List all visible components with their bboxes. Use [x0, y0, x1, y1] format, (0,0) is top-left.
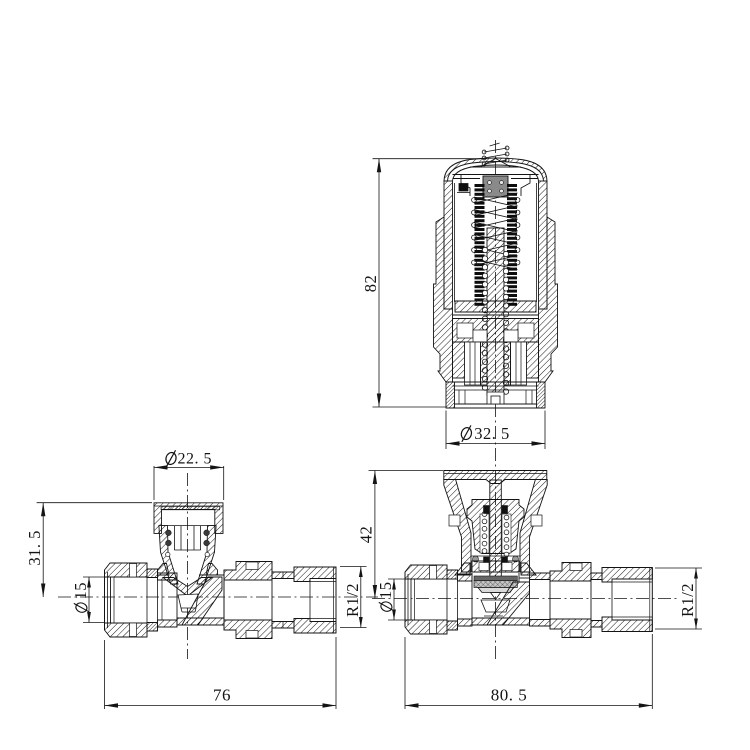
- svg-text:31. 5: 31. 5: [25, 530, 44, 566]
- svg-text:80. 5: 80. 5: [491, 686, 528, 705]
- svg-text:R1/2: R1/2: [343, 583, 362, 617]
- svg-text:76: 76: [213, 686, 231, 705]
- svg-text:32. 5: 32. 5: [474, 424, 510, 443]
- svg-text:22. 5: 22. 5: [177, 451, 212, 468]
- svg-text:15: 15: [71, 582, 90, 600]
- svg-text:R1/2: R1/2: [678, 583, 697, 617]
- svg-text:15: 15: [376, 582, 395, 600]
- svg-text:82: 82: [361, 275, 380, 293]
- svg-text:42: 42: [357, 526, 376, 544]
